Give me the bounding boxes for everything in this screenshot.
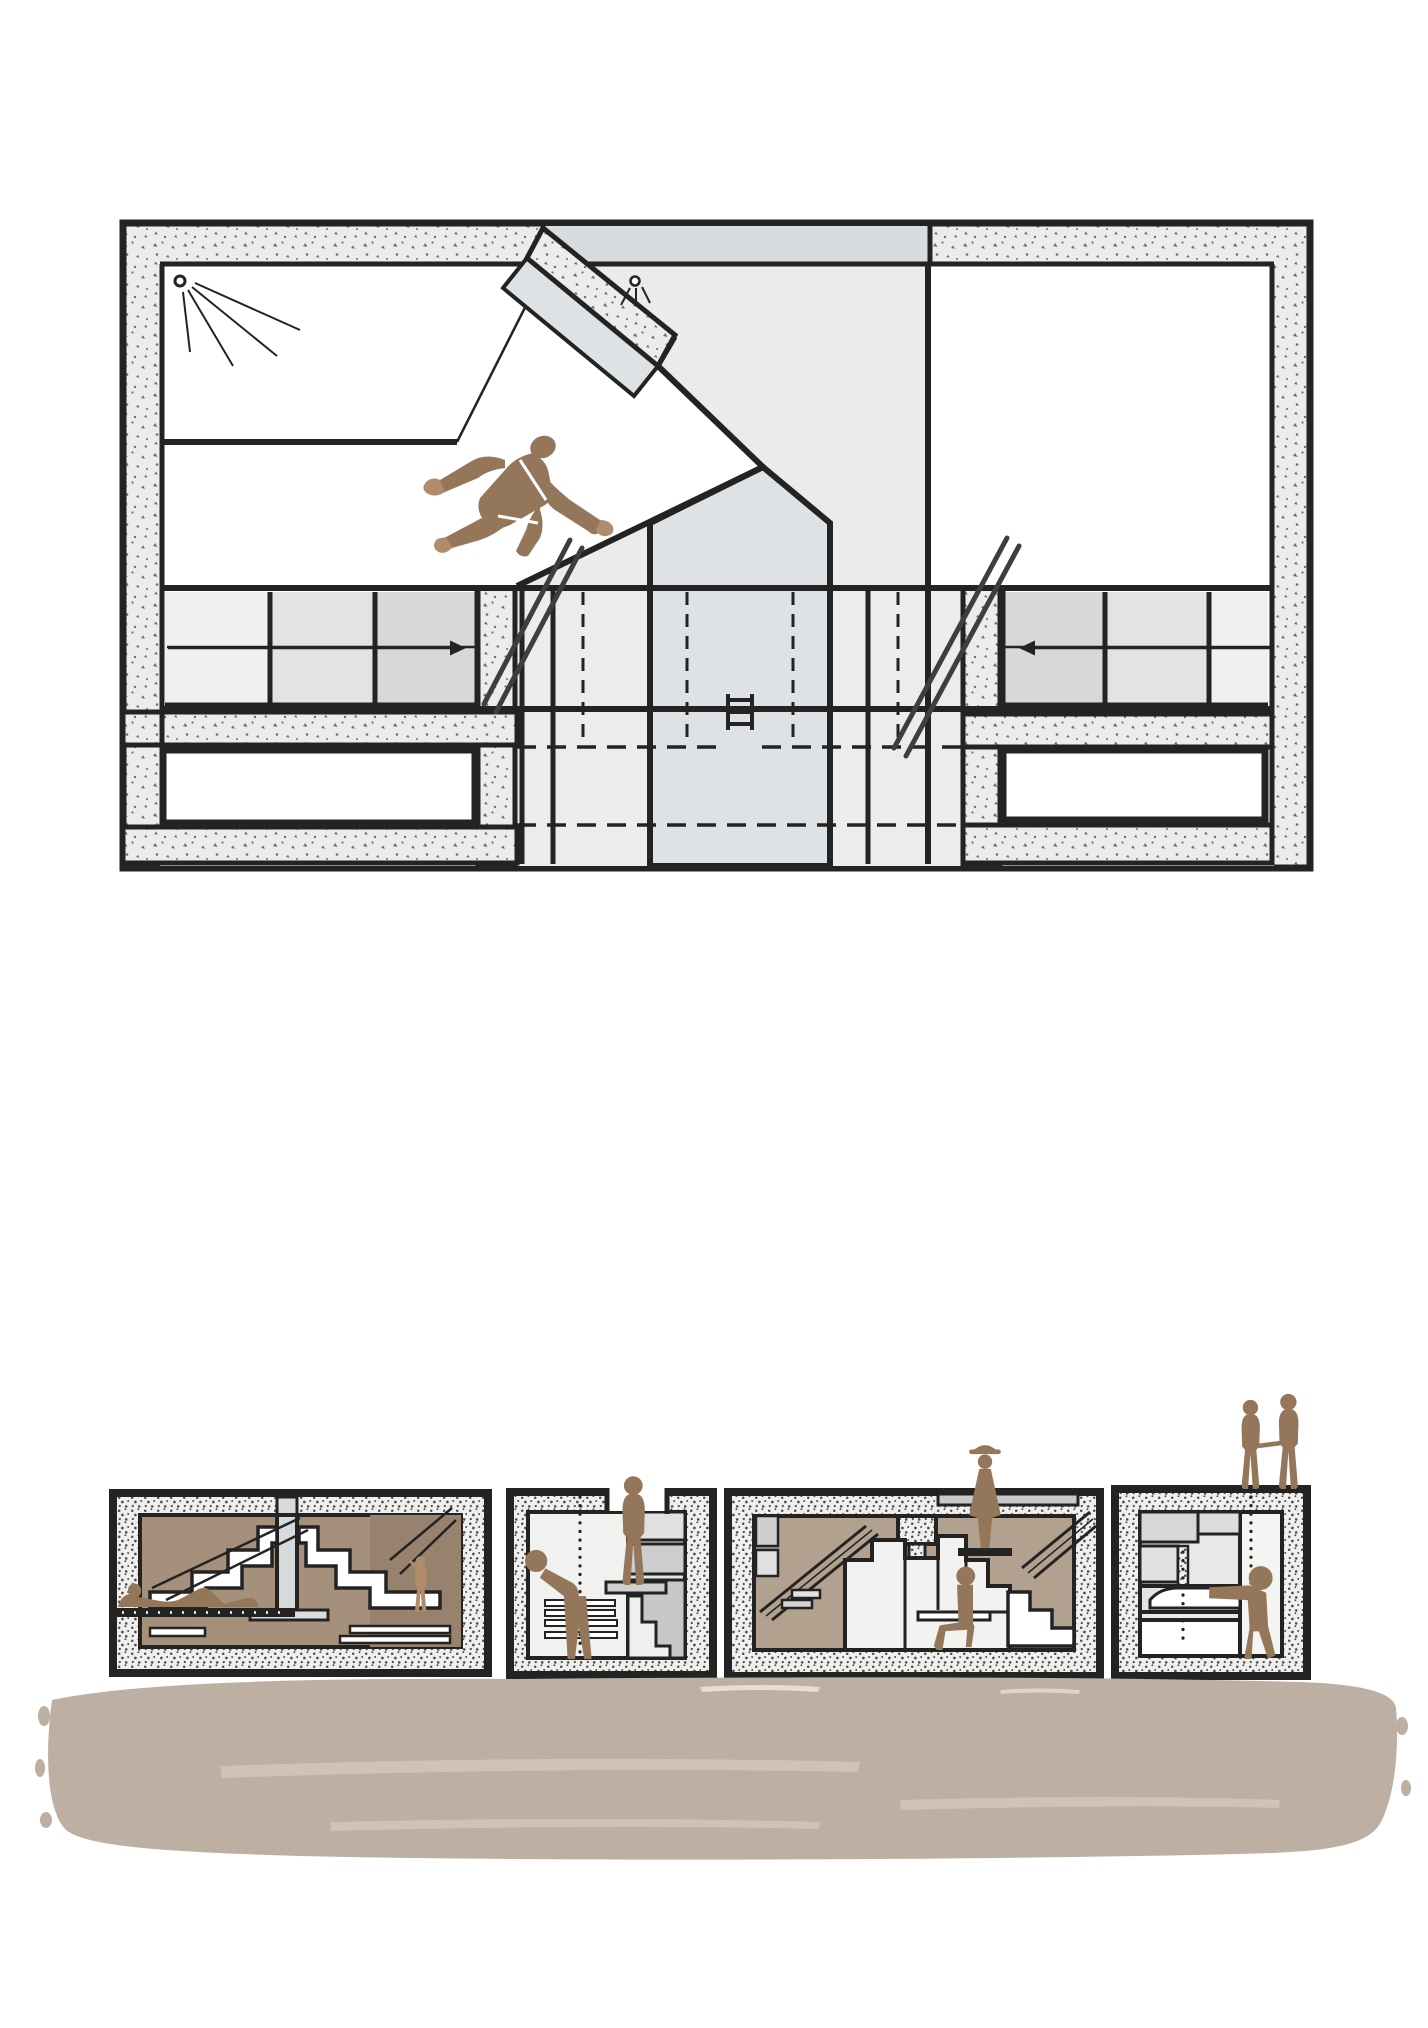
- section3-roof-beam: [938, 1494, 1078, 1505]
- section3-opening-ledge: [958, 1548, 1012, 1556]
- plan-top-wall-gray-segment: [543, 226, 930, 264]
- section1-slab: [350, 1626, 450, 1633]
- section2-ledge: [606, 1582, 666, 1593]
- section3-panel: [756, 1550, 778, 1576]
- plan-lower-right-room: [1003, 750, 1265, 820]
- plan-right-bottomwall: [963, 825, 1272, 863]
- section3-step: [792, 1590, 820, 1598]
- architectural-drawing: [0, 0, 1428, 2028]
- section1-slab: [340, 1636, 450, 1643]
- section-1: [113, 1493, 488, 1673]
- plan-left-bottomwall: [123, 827, 517, 863]
- section3-panel: [756, 1516, 778, 1546]
- section4-lower-room: [1140, 1620, 1240, 1656]
- plan-pentagon-core: [650, 467, 830, 866]
- plan-lower-left-room: [163, 750, 475, 823]
- section-4: [1115, 1394, 1307, 1676]
- ground-texture: [35, 1677, 1411, 1859]
- section3-pier-stem: [909, 1544, 925, 1558]
- section-3: [728, 1445, 1100, 1676]
- plan-drawing: [123, 223, 1310, 868]
- section-2: [510, 1476, 713, 1675]
- section4-panel: [1198, 1512, 1240, 1534]
- section1-slab: [150, 1628, 205, 1636]
- couple-figure: [1242, 1400, 1260, 1489]
- section3-step: [782, 1600, 812, 1608]
- couple-figure: [1279, 1394, 1299, 1489]
- mini-ladder-icon: [728, 694, 752, 730]
- holding-hands: [1258, 1443, 1281, 1446]
- section4-panel: [1140, 1512, 1198, 1542]
- section4-panel: [1140, 1546, 1178, 1582]
- drawing-canvas: [0, 0, 1428, 2028]
- plan-left-midwall: [123, 712, 517, 745]
- section1-trunk: [277, 1515, 297, 1612]
- roof-couple: [1242, 1394, 1299, 1489]
- plan-right-midwall: [963, 714, 1272, 747]
- section3-bench: [918, 1612, 990, 1620]
